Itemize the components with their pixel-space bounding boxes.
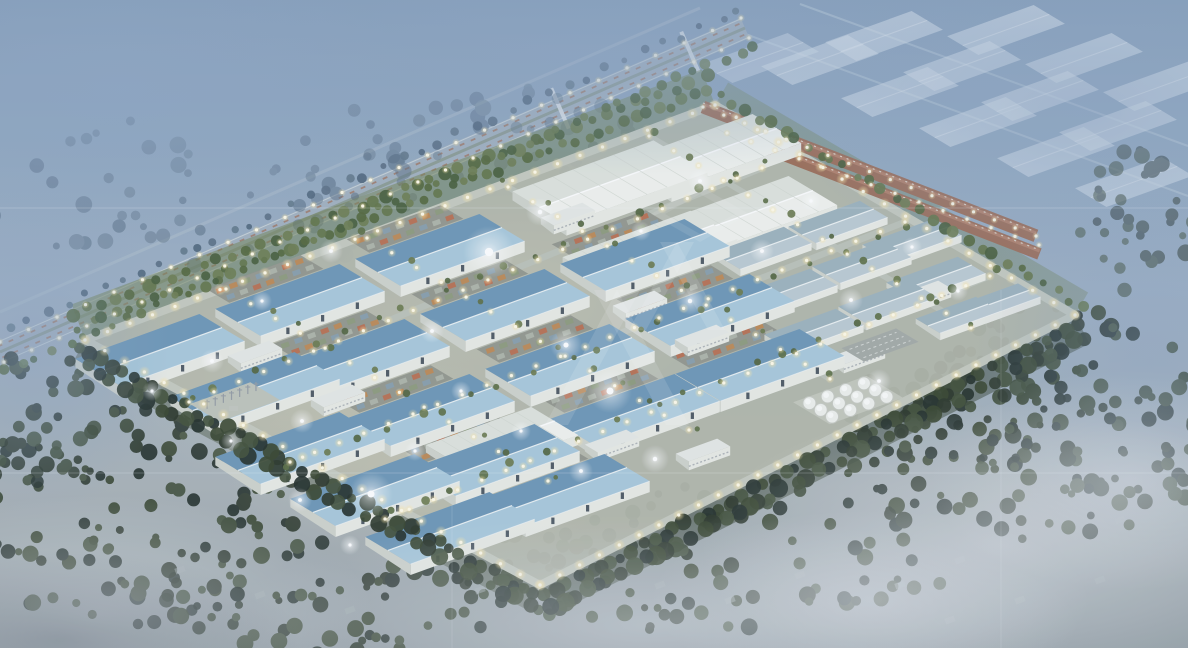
blue-color-cast (0, 0, 1188, 648)
aerial-rendering (0, 0, 1188, 648)
industrial-park-scene (0, 0, 1188, 648)
